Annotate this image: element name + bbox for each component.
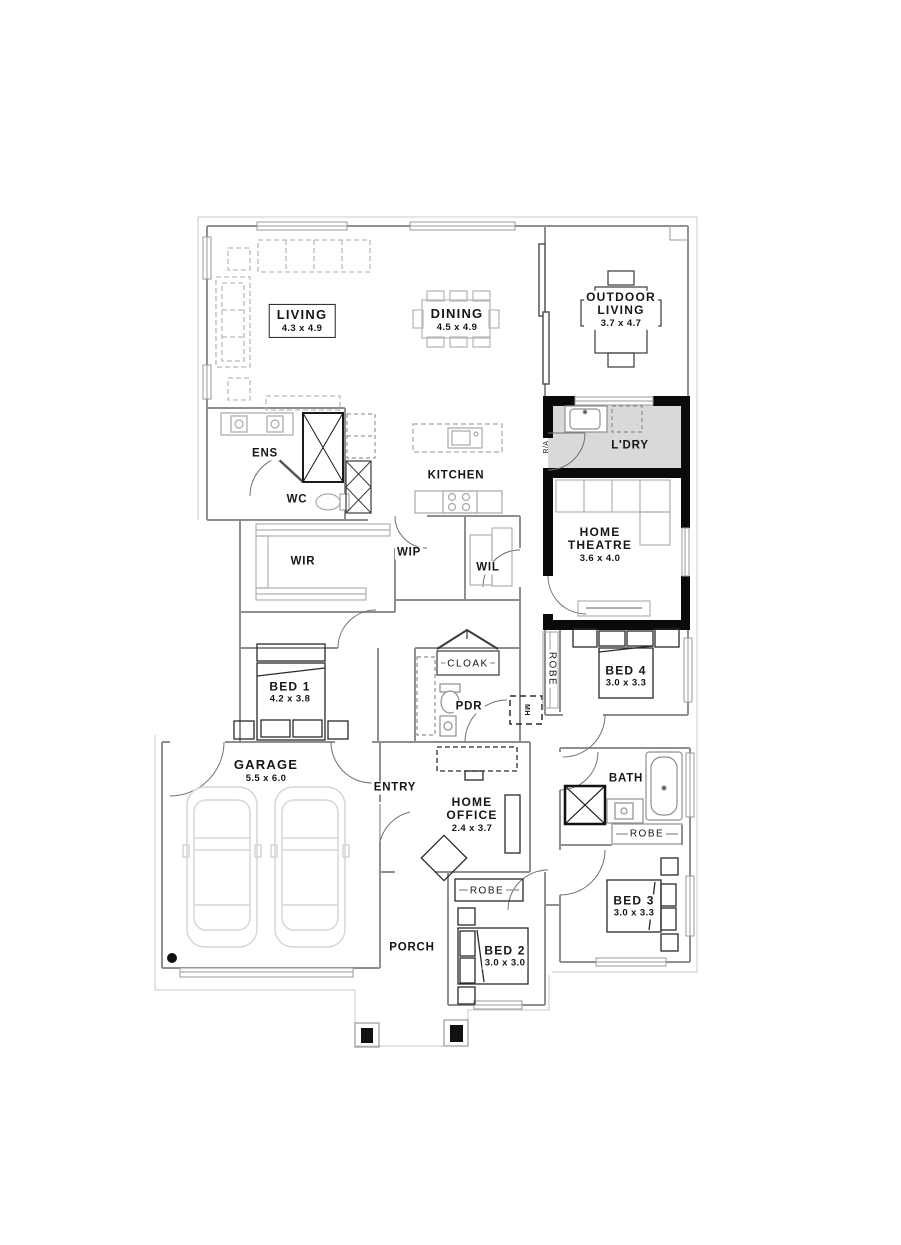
room-label-bath: BATH <box>607 773 645 786</box>
office-dims: 2.4 x 3.7 <box>446 824 497 835</box>
room-label-entry: ENTRY <box>372 782 419 795</box>
room-label-porch: PORCH <box>387 942 437 955</box>
room-label-pdr: PDR <box>454 701 485 714</box>
room-label-wil: WIL <box>474 562 501 575</box>
bathtub <box>646 752 682 820</box>
window-bath <box>686 753 694 817</box>
floor-plan-drawing <box>0 0 901 1245</box>
window-top-dining <box>410 222 515 230</box>
window-laundry <box>575 397 653 405</box>
window-bed3-right <box>686 876 694 936</box>
living-dims: 4.3 x 4.9 <box>277 323 328 334</box>
room-label-home-theatre: HOME THEATRE 3.6 x 4.0 <box>566 526 634 565</box>
wc-toilet <box>316 494 349 510</box>
laundry-name: L'DRY <box>611 440 649 453</box>
room-label-wir: WIR <box>289 556 318 569</box>
room-label-bed1: BED 1 4.2 x 3.8 <box>267 680 312 705</box>
window-left-2 <box>203 365 211 399</box>
annotation-return-air: R/A <box>543 440 551 453</box>
room-label-home-office: HOME OFFICE 2.4 x 3.7 <box>444 796 499 835</box>
robe-bath-name: ROBE <box>630 828 664 839</box>
kitchen-name: KITCHEN <box>428 470 485 483</box>
room-label-bed2: BED 2 3.0 x 3.0 <box>482 944 527 969</box>
living-name: LIVING <box>277 308 328 323</box>
theatre-name-2: THEATRE <box>568 539 632 552</box>
room-label-garage: GARAGE 5.5 x 6.0 <box>232 758 300 784</box>
floor-plan: LIVING 4.3 x 4.9 DINING 4.5 x 4.9 OUTDOO… <box>0 0 901 1245</box>
linen-cupboard <box>346 461 371 513</box>
ens-door-leaf <box>277 458 303 482</box>
room-label-dining: DINING 4.5 x 4.9 <box>429 307 486 333</box>
wip-shelf <box>492 528 512 586</box>
ens-vanity <box>221 413 293 435</box>
garage-cars <box>183 787 349 947</box>
theatre-dims: 3.6 x 4.0 <box>568 554 632 565</box>
room-label-wip: WIP <box>395 547 423 560</box>
kitchen-island <box>413 424 502 452</box>
dining-dims: 4.5 x 4.9 <box>431 322 484 333</box>
pdr-cupboard <box>417 657 435 735</box>
office-name-2: OFFICE <box>446 809 497 822</box>
bed1-dims: 4.2 x 3.8 <box>269 695 310 706</box>
outdoor-name-2: LIVING <box>586 304 656 317</box>
garage-floor-waste <box>167 953 177 963</box>
bed4-dims: 3.0 x 3.3 <box>605 679 646 690</box>
bath-vanity <box>607 799 643 823</box>
office-name-1: HOME <box>446 796 497 809</box>
theatre-tv-unit <box>578 601 650 616</box>
robe-bed2-name: ROBE <box>470 885 504 896</box>
outdoor-post <box>670 226 688 240</box>
wip-name: WIP <box>397 547 421 560</box>
wir-name: WIR <box>291 556 316 569</box>
window-theatre <box>682 528 689 576</box>
bed3-dims: 3.0 x 3.3 <box>613 909 654 920</box>
window-top-living <box>257 222 347 230</box>
porch-piers <box>355 1020 468 1047</box>
outdoor-name-1: OUTDOOR <box>586 291 656 304</box>
garage-dims: 5.5 x 6.0 <box>234 773 298 784</box>
entry-feature <box>421 835 466 880</box>
wir-shelves <box>256 524 390 600</box>
garage-name: GARAGE <box>234 758 298 773</box>
robe-bed4-name: ROBE <box>546 652 557 686</box>
room-label-living: LIVING 4.3 x 4.9 <box>269 304 336 338</box>
annotation-manhole: MH <box>522 704 530 716</box>
bed4-name: BED 4 <box>605 664 646 677</box>
wil-shelf <box>470 535 492 585</box>
pdr-name: PDR <box>456 701 483 714</box>
sliding-door <box>539 244 549 384</box>
ens-shower <box>303 413 343 482</box>
dining-name: DINING <box>431 307 484 322</box>
bed3-name: BED 3 <box>613 894 654 907</box>
ens-name: ENS <box>252 448 278 461</box>
bed1-name: BED 1 <box>269 680 310 693</box>
room-label-robe-bath: ROBE <box>628 828 666 839</box>
room-label-kitchen: KITCHEN <box>426 470 487 483</box>
room-label-cloak: CLOAK <box>445 658 490 669</box>
fridge-space <box>347 414 375 458</box>
theatre-name-1: HOME <box>568 526 632 539</box>
entry-name: ENTRY <box>374 782 417 795</box>
window-bed3-bottom <box>596 958 666 966</box>
porch-name: PORCH <box>389 942 435 955</box>
wc-name: WC <box>287 494 308 507</box>
outdoor-dims: 3.7 x 4.7 <box>586 319 656 330</box>
room-label-bed3: BED 3 3.0 x 3.3 <box>611 894 656 919</box>
garage-door-band <box>180 968 353 977</box>
bath-shower <box>565 786 605 824</box>
laundry-trough <box>565 406 607 432</box>
kitchen-bench-cooktop <box>415 491 502 513</box>
bed2-name: BED 2 <box>484 944 525 957</box>
window-bed4 <box>684 638 692 702</box>
window-left-1 <box>203 237 211 279</box>
room-label-ens: ENS <box>250 448 280 461</box>
return-air-text: R/A <box>543 440 551 453</box>
room-label-bed4: BED 4 3.0 x 3.3 <box>603 664 648 689</box>
room-label-outdoor-living: OUTDOOR LIVING 3.7 x 4.7 <box>584 291 658 330</box>
room-label-robe-bed4: ROBE <box>546 650 557 688</box>
wil-name: WIL <box>476 562 499 575</box>
room-label-robe-bed2: ROBE <box>468 885 506 896</box>
bed2-dims: 3.0 x 3.0 <box>484 959 525 970</box>
cloak-name: CLOAK <box>447 658 488 669</box>
window-bed2-bottom <box>474 1001 522 1009</box>
bath-name: BATH <box>609 773 643 786</box>
room-label-laundry: L'DRY <box>609 440 651 453</box>
room-label-wc: WC <box>285 494 310 507</box>
manhole-text: MH <box>522 704 530 716</box>
